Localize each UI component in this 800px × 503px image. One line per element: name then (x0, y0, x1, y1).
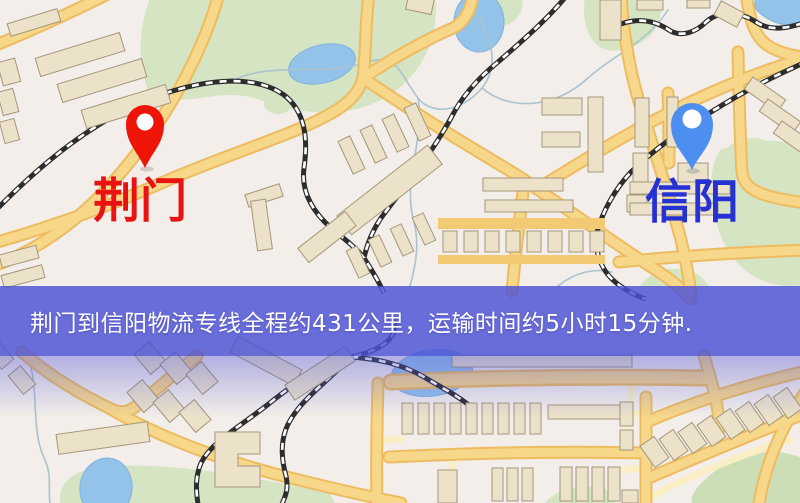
destination-pin-hole (683, 110, 702, 129)
map-view[interactable]: 荆门 信阳 荆门到信阳物流专线全程约431公里，运输时间约5小时15分钟. (0, 0, 800, 503)
origin-pin-shadow (140, 166, 154, 171)
destination-label: 信阳 (645, 175, 739, 230)
origin-pin-hole (137, 114, 154, 131)
destination-pin-shadow (686, 168, 700, 173)
map-canvas: 荆门 信阳 (0, 0, 800, 503)
origin-label: 荆门 (93, 174, 187, 229)
route-info-text: 荆门到信阳物流专线全程约431公里，运输时间约5小时15分钟. (30, 304, 693, 338)
route-info-banner: 荆门到信阳物流专线全程约431公里，运输时间约5小时15分钟. (0, 286, 800, 356)
